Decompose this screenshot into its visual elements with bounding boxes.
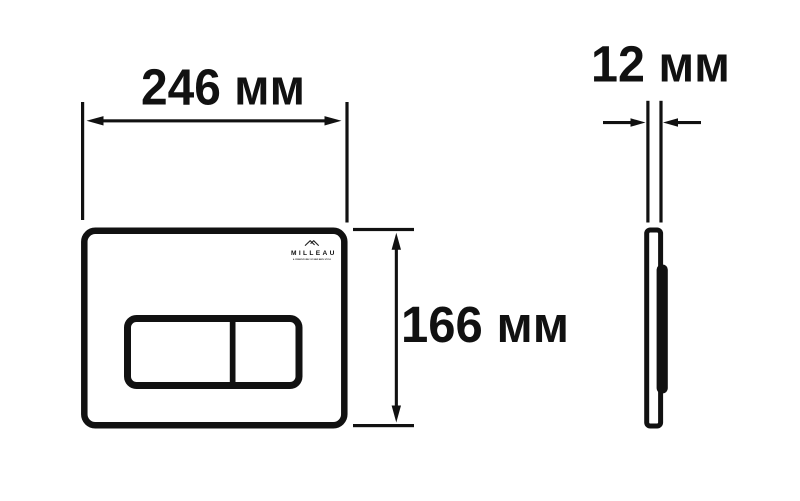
svg-text:12 мм: 12 мм: [591, 36, 730, 93]
svg-text:MILLEAU: MILLEAU: [291, 250, 337, 257]
svg-text:166 мм: 166 мм: [401, 296, 569, 353]
svg-text:A CREATIVE WAY OF NEW BATH STY: A CREATIVE WAY OF NEW BATH STYLE: [293, 258, 331, 261]
svg-text:246 мм: 246 мм: [141, 59, 305, 116]
